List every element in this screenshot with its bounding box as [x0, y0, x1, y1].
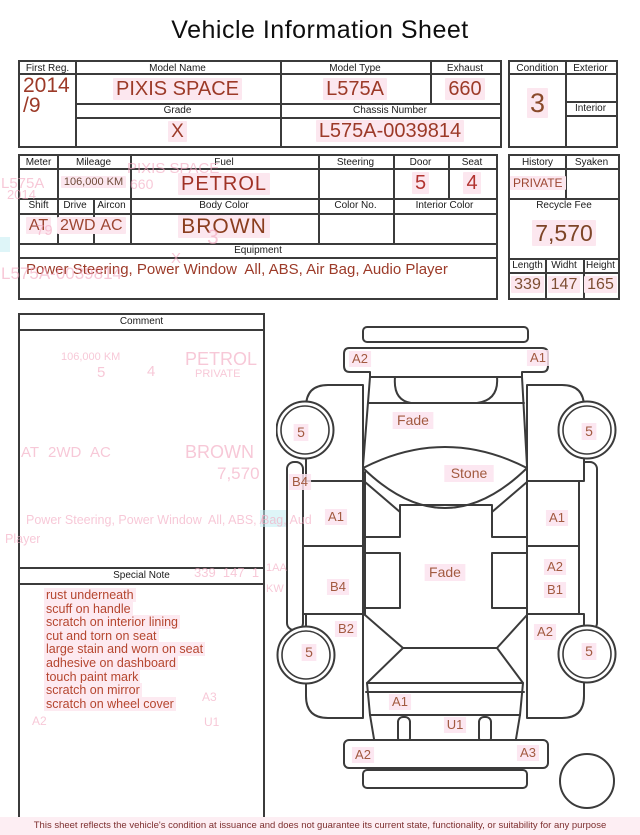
recycle-fee-value: 7,570	[510, 220, 618, 247]
diagram-label: Stone	[451, 465, 488, 481]
spare-wheel	[560, 754, 614, 808]
diagram-label: B2	[338, 621, 354, 636]
special-note-item: scuff on handle	[44, 602, 133, 616]
ghost-text: Player	[5, 532, 40, 546]
height-value: 165	[583, 276, 618, 294]
recycle-fee-label: Recycle Fee	[510, 200, 618, 211]
length-label: Length	[510, 260, 545, 271]
ghost-text: 4	[147, 363, 155, 380]
ghost-text: 2WD	[48, 444, 81, 461]
ghost-text: U1	[204, 715, 219, 729]
b-pillar-right	[492, 553, 527, 608]
special-note-item: scratch on interior lining	[44, 615, 180, 629]
rear-bottom-strip	[363, 770, 527, 788]
ghost-patch	[0, 237, 10, 252]
grid-line	[75, 117, 500, 119]
car-damage-diagram: A2A1FadeStone55B4A1A1B4A2B1FadeB2A255A1U…	[276, 315, 620, 820]
special-note-item: touch paint mark	[44, 670, 140, 684]
diagram-label: Fade	[397, 412, 429, 428]
ghost-text: Power Steering, Power Window All, ABS, A…	[26, 513, 264, 527]
ghost-text: KW	[266, 583, 284, 595]
model-type-label: Model Type	[280, 63, 430, 74]
model-type-value: L575A	[280, 78, 430, 101]
special-note-item: rust underneath	[44, 588, 136, 602]
grid-line	[510, 168, 618, 170]
rear-window	[367, 648, 523, 683]
special-note-item: scratch on wheel cover	[44, 697, 176, 711]
diagram-label: A2	[355, 747, 371, 762]
interior-label: Interior	[565, 103, 616, 114]
body-color-label: Body Color	[130, 200, 318, 211]
special-note-item: cut and torn on seat	[44, 629, 159, 643]
grid-line	[20, 257, 496, 259]
special-note-item: adhesive on dashboard	[44, 656, 178, 670]
ghost-text: AC	[90, 444, 111, 461]
ghost-text: 3	[207, 226, 219, 250]
model-name-value: PIXIS SPACE	[75, 78, 280, 101]
diagram-label: 5	[585, 643, 593, 659]
height-label: Height	[583, 260, 618, 271]
door-label: Door	[393, 157, 448, 168]
mileage-label: Mileage	[57, 157, 130, 168]
door-value: 5	[393, 172, 448, 195]
condition-label: Condition	[510, 63, 565, 74]
history-value: PRIVATE	[510, 176, 565, 190]
diagram-label: U1	[447, 717, 464, 732]
ghost-text: 106,000 KM	[61, 351, 120, 363]
ghost-text: PIXIS SPACE	[127, 160, 219, 177]
diagram-label: 5	[297, 424, 305, 440]
aircon-value: AC	[93, 217, 130, 235]
ghost-text: 79	[36, 222, 53, 239]
diagram-label: 5	[585, 423, 593, 439]
ghost-text: 1AA	[266, 562, 287, 574]
body-color-value: BROWN	[130, 215, 318, 239]
meter-label: Meter	[20, 157, 57, 168]
exterior-label: Exterior	[565, 63, 616, 74]
exhaust-label: Exhaust	[430, 63, 500, 74]
seat-value: 4	[448, 172, 496, 195]
syaken-label: Syaken	[565, 157, 618, 168]
disclaimer-text: This sheet reflects the vehicle's condit…	[0, 820, 640, 831]
diagram-label: B4	[330, 579, 346, 594]
drive-value: 2WD	[57, 217, 93, 235]
chassis-label: Chassis Number	[280, 105, 500, 116]
ghost-text: A2	[32, 714, 47, 728]
table1-box: First Reg. 2014 /9 Model Name PIXIS SPAC…	[18, 60, 502, 148]
interior-color-label: Interior Color	[393, 200, 496, 211]
width-label: Widht	[545, 260, 583, 271]
diagram-label: A2	[537, 624, 553, 639]
diagram-label: A1	[392, 694, 408, 709]
ghost-text: 339 147 1	[194, 565, 259, 580]
first-reg-value: 2014 /9	[23, 76, 75, 116]
first-reg-label: First Reg.	[20, 63, 75, 74]
front-bumper	[344, 348, 548, 377]
diagram-label: B1	[547, 582, 563, 597]
ghost-text: PRIVATE	[195, 368, 240, 380]
ghost-text: AT	[21, 444, 39, 461]
ghost-text: 2014	[7, 187, 36, 202]
history-box: History PRIVATE Syaken Recycle Fee 7,570…	[508, 154, 620, 300]
mileage-value: 106,000 KM	[57, 176, 130, 188]
rocker-right	[579, 462, 597, 630]
front-top-strip	[363, 327, 528, 342]
ghost-text: BROWN	[185, 442, 254, 463]
ghost-text: A3	[202, 690, 217, 704]
grade-label: Grade	[75, 105, 280, 116]
ghost-text: X	[171, 250, 181, 267]
ghost-text: L575A-0039814	[1, 264, 122, 284]
seat-label: Seat	[448, 157, 496, 168]
condition-box: Condition 3 Exterior Interior	[508, 60, 618, 148]
diagram-label: A3	[520, 745, 536, 760]
grade-value: X	[75, 121, 280, 143]
steering-label: Steering	[318, 157, 393, 168]
c-pillars	[365, 615, 527, 648]
grid-line	[565, 115, 616, 117]
drive-label: Drive	[57, 200, 93, 211]
ghost-text: Bag, Aud	[261, 513, 312, 527]
aircon-label: Aircon	[93, 200, 130, 211]
diagram-label: 5	[305, 644, 313, 660]
diagram-label: A1	[549, 510, 565, 525]
diagram-label: A1	[328, 509, 344, 524]
vehicle-information-sheet: Vehicle Information Sheet First Reg. 201…	[0, 0, 640, 835]
diagram-label: A2	[352, 351, 368, 366]
chassis-value: L575A-0039814	[280, 120, 500, 143]
special-note-item: large stain and worn on seat	[44, 642, 205, 656]
width-value: 147	[545, 276, 583, 294]
model-name-label: Model Name	[75, 63, 280, 74]
grid-line	[20, 168, 496, 170]
color-no-label: Color No.	[318, 200, 393, 211]
diagram-label: Fade	[429, 564, 461, 580]
diagram-label: A1	[530, 350, 546, 365]
diagram-label: B4	[292, 474, 308, 489]
special-note-item: scratch on mirror	[44, 683, 142, 697]
ghost-text: 660	[130, 176, 153, 192]
diagram-label: A2	[547, 559, 563, 574]
history-label: History	[510, 157, 565, 168]
ghost-text: 5	[97, 364, 105, 381]
grid-line	[510, 272, 618, 274]
door-rear-right	[527, 546, 579, 614]
exhaust-value: 660	[430, 78, 500, 101]
ghost-text: PETROL	[185, 349, 257, 370]
ghost-text: 7,570	[217, 464, 260, 484]
b-pillar-left	[365, 553, 400, 608]
length-value: 339	[510, 276, 545, 294]
page-title: Vehicle Information Sheet	[0, 16, 640, 45]
equipment-label: Equipment	[20, 245, 496, 256]
condition-value: 3	[510, 88, 565, 119]
